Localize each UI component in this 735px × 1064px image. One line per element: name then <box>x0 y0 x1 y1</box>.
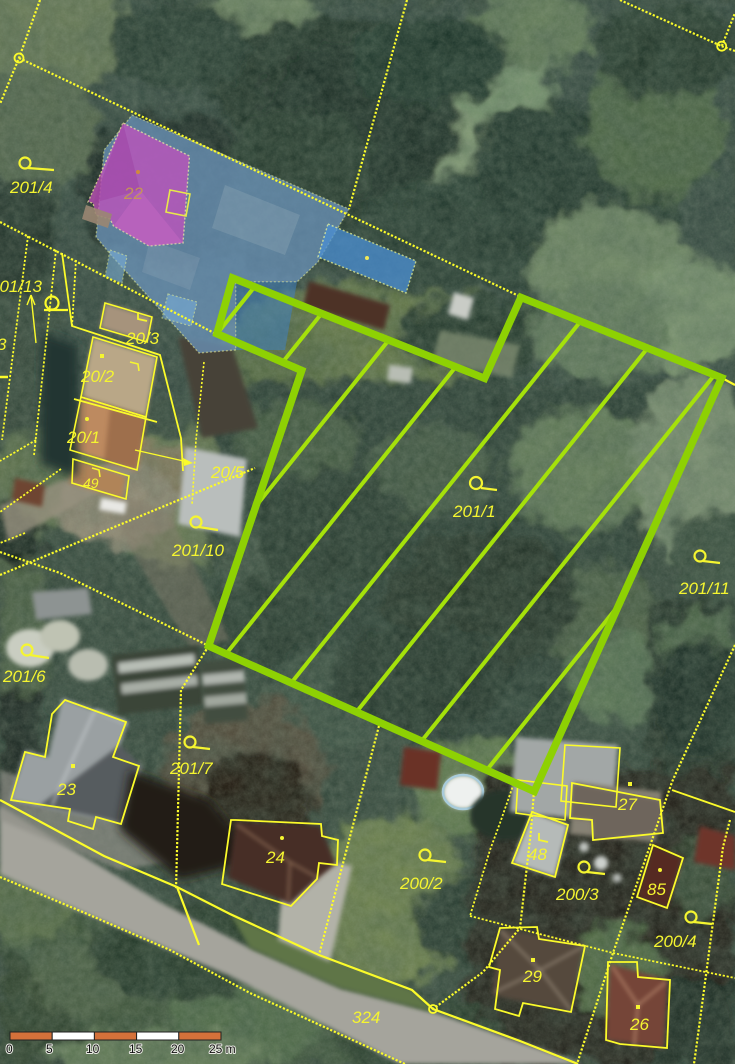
svg-text:26: 26 <box>629 1015 649 1034</box>
svg-text:201/7: 201/7 <box>169 759 213 778</box>
svg-text:25 m: 25 m <box>209 1042 236 1056</box>
svg-text:5: 5 <box>46 1042 53 1056</box>
svg-text:20/2: 20/2 <box>80 367 115 386</box>
svg-text:24: 24 <box>265 848 285 867</box>
svg-text:201/10: 201/10 <box>171 541 225 560</box>
svg-text:20: 20 <box>171 1042 185 1056</box>
svg-text:20/3: 20/3 <box>125 329 160 348</box>
svg-text:3: 3 <box>0 335 7 354</box>
svg-text:201/13: 201/13 <box>0 277 43 296</box>
svg-text:201/4: 201/4 <box>9 178 53 197</box>
svg-text:15: 15 <box>129 1042 143 1056</box>
svg-text:200/2: 200/2 <box>399 874 443 893</box>
svg-text:20/5: 20/5 <box>210 463 245 482</box>
svg-text:27: 27 <box>617 795 637 814</box>
svg-text:20/1: 20/1 <box>66 428 100 447</box>
svg-text:29: 29 <box>522 967 542 986</box>
svg-text:22: 22 <box>123 184 143 203</box>
svg-text:201/1: 201/1 <box>452 502 496 521</box>
svg-text:49: 49 <box>83 475 99 491</box>
svg-text:23: 23 <box>56 780 76 799</box>
svg-text:201/11: 201/11 <box>678 579 730 598</box>
svg-text:200/3: 200/3 <box>555 885 599 904</box>
svg-text:200/4: 200/4 <box>653 932 697 951</box>
svg-text:324: 324 <box>352 1008 380 1027</box>
svg-text:48: 48 <box>528 845 547 864</box>
svg-text:10: 10 <box>86 1042 100 1056</box>
svg-text:201/6: 201/6 <box>2 667 46 686</box>
svg-text:85: 85 <box>647 880 666 899</box>
svg-text:0: 0 <box>6 1042 13 1056</box>
